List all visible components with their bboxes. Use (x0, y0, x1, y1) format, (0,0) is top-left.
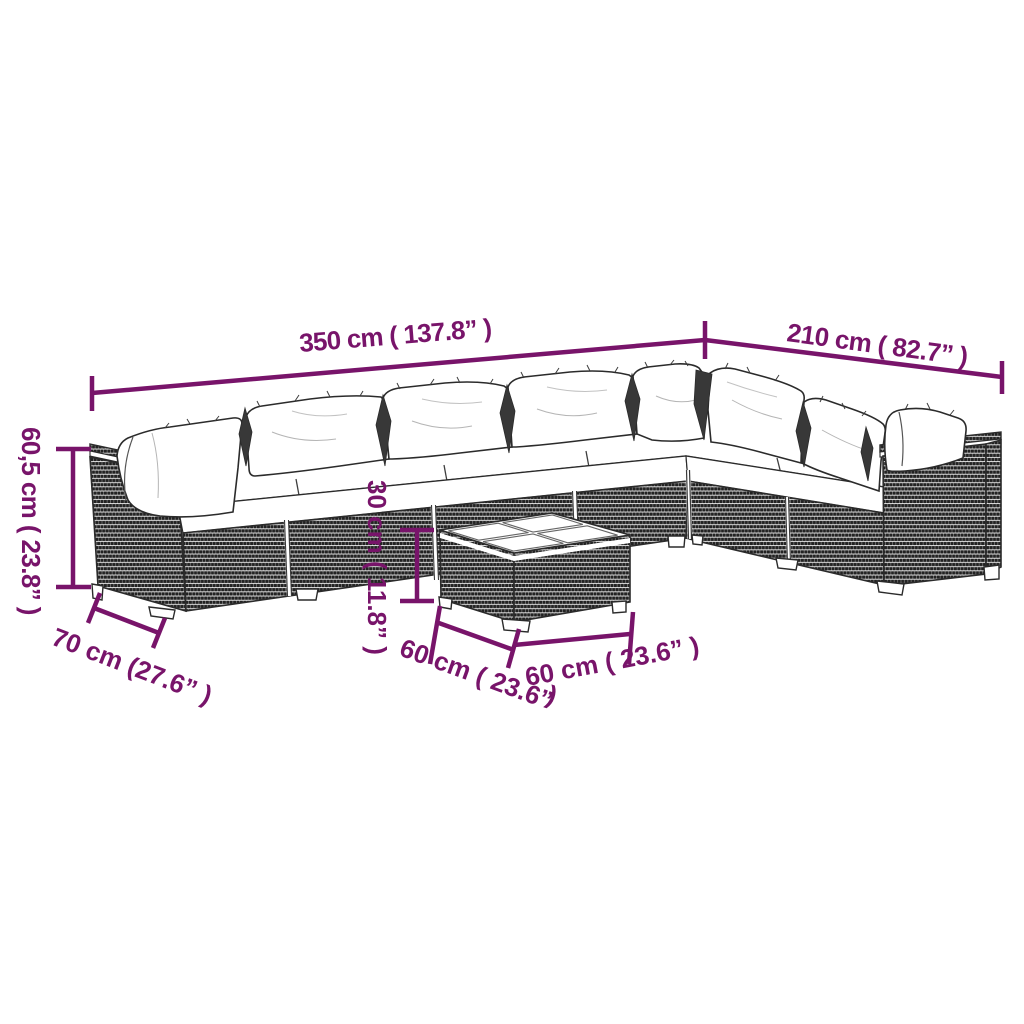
svg-text:30 cm ( 11.8” ): 30 cm ( 11.8” ) (362, 480, 392, 655)
svg-text:60,5 cm ( 23.8” ): 60,5 cm ( 23.8” ) (16, 427, 46, 615)
